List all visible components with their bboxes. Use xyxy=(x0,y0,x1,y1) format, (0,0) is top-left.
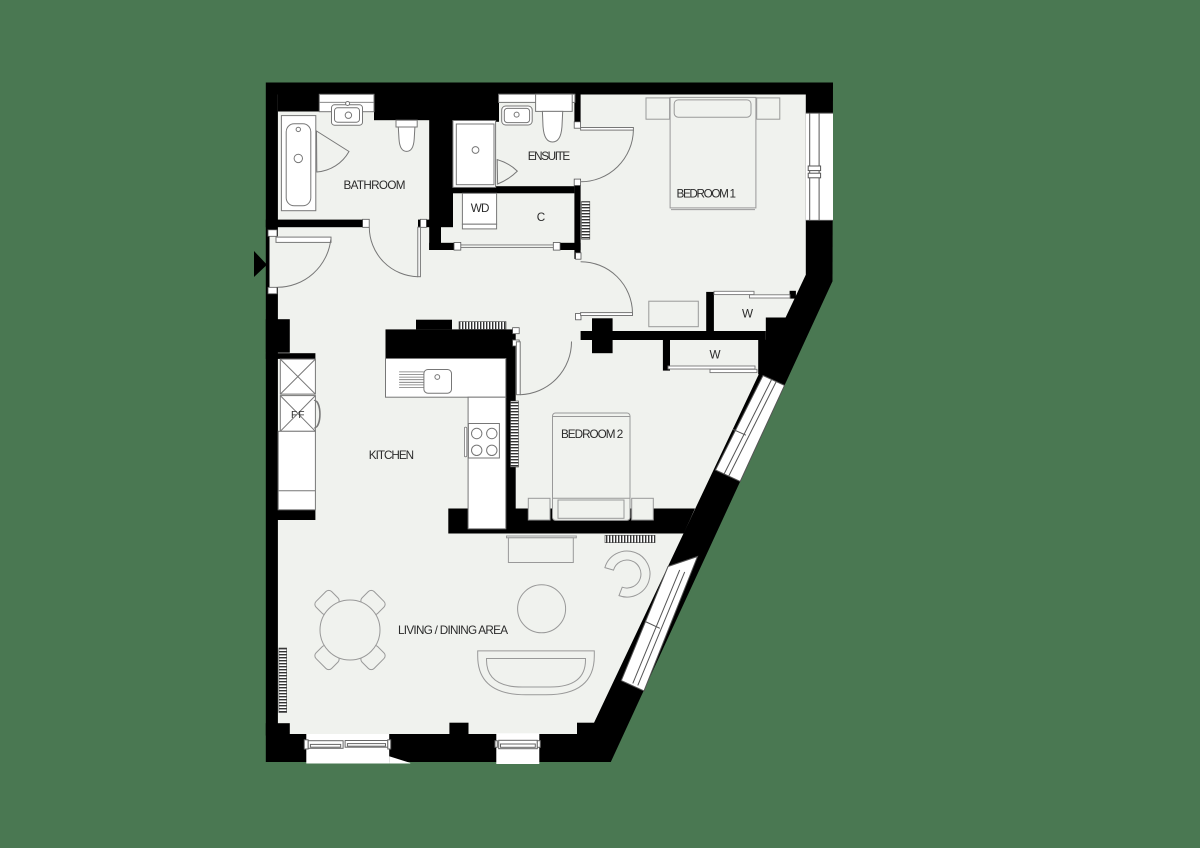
svg-text:FF: FF xyxy=(291,410,305,421)
svg-text:BEDROOM 2: BEDROOM 2 xyxy=(561,428,623,441)
svg-text:W: W xyxy=(742,307,753,320)
svg-text:BEDROOM 1: BEDROOM 1 xyxy=(677,188,737,201)
svg-text:ENSUITE: ENSUITE xyxy=(528,150,571,163)
svg-text:C: C xyxy=(537,211,545,224)
svg-text:W: W xyxy=(710,348,721,361)
svg-text:BATHROOM: BATHROOM xyxy=(344,179,406,192)
svg-text:LIVING / DINING AREA: LIVING / DINING AREA xyxy=(398,624,508,637)
svg-text:WD: WD xyxy=(471,202,490,215)
svg-text:KITCHEN: KITCHEN xyxy=(369,449,414,462)
